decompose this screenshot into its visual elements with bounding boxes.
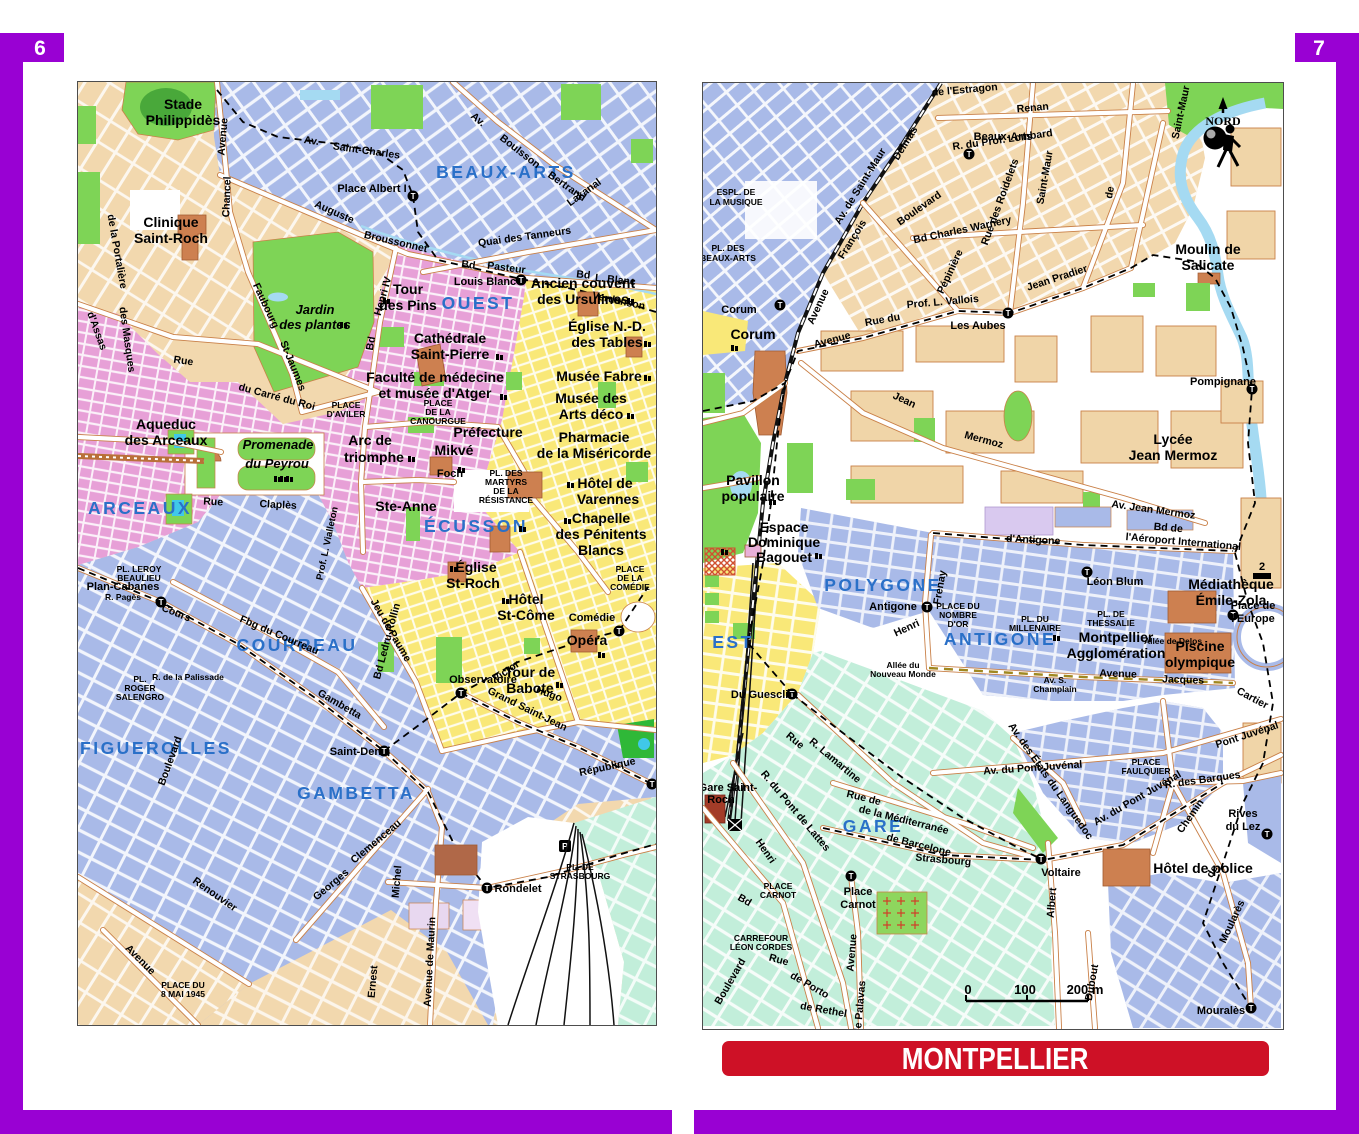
svg-text:R. de la Palissade: R. de la Palissade xyxy=(152,672,224,682)
svg-text:Les Aubes: Les Aubes xyxy=(950,320,1005,332)
svg-text:BEAUX-ARTS: BEAUX-ARTS xyxy=(703,253,756,263)
svg-text:Bd: Bd xyxy=(364,336,378,352)
svg-text:Comédie: Comédie xyxy=(569,612,615,624)
svg-text:Louis Blanc: Louis Blanc xyxy=(454,276,516,288)
svg-text:Église N.-D.: Église N.-D. xyxy=(568,318,646,334)
svg-text:T: T xyxy=(459,689,464,698)
svg-text:FAULQUIER: FAULQUIER xyxy=(1121,766,1170,776)
svg-text:Allée de Delos: Allée de Delos xyxy=(1144,636,1202,646)
svg-text:T: T xyxy=(1006,309,1011,318)
svg-text:Champlain: Champlain xyxy=(1033,684,1076,694)
svg-text:ARCEAUX: ARCEAUX xyxy=(88,498,192,518)
svg-text:T: T xyxy=(849,872,854,881)
svg-text:T: T xyxy=(650,780,655,789)
svg-text:COMÉDIE: COMÉDIE xyxy=(610,582,650,592)
svg-text:PL. DES: PL. DES xyxy=(711,243,744,253)
svg-text:Montpellier: Montpellier xyxy=(1079,629,1154,645)
svg-text:Pavillon: Pavillon xyxy=(726,472,780,488)
svg-text:0: 0 xyxy=(964,982,971,997)
svg-text:Du Guesclin: Du Guesclin xyxy=(731,689,795,701)
svg-text:Bd: Bd xyxy=(576,268,591,281)
svg-text:Jardin: Jardin xyxy=(295,302,334,317)
svg-text:Jean Mermoz: Jean Mermoz xyxy=(1129,447,1218,463)
svg-text:Varennes: Varennes xyxy=(577,491,639,507)
svg-text:FIGUEROLLES: FIGUEROLLES xyxy=(80,738,232,758)
svg-text:LA MUSIQUE: LA MUSIQUE xyxy=(709,197,762,207)
svg-text:Opéra: Opéra xyxy=(567,632,608,648)
svg-text:ESPL. DE: ESPL. DE xyxy=(717,187,756,197)
svg-text:Carnot: Carnot xyxy=(840,899,876,911)
svg-text:Rives: Rives xyxy=(1228,808,1257,820)
svg-text:EST: EST xyxy=(712,632,754,652)
svg-text:POLYGONE: POLYGONE xyxy=(824,575,942,595)
svg-text:RÉSISTANCE: RÉSISTANCE xyxy=(479,495,533,505)
svg-text:des Pénitents: des Pénitents xyxy=(555,526,646,542)
svg-text:St-Roch: St-Roch xyxy=(446,575,500,591)
svg-text:2: 2 xyxy=(1259,561,1265,573)
svg-text:MILLENAIRE: MILLENAIRE xyxy=(1009,623,1061,633)
svg-text:Place: Place xyxy=(844,886,873,898)
svg-text:Rondelet: Rondelet xyxy=(494,883,541,895)
svg-text:T: T xyxy=(519,276,524,285)
svg-text:Voltaire: Voltaire xyxy=(1041,867,1081,879)
svg-text:Pharmacie: Pharmacie xyxy=(559,429,630,445)
svg-text:Saint-Roch: Saint-Roch xyxy=(134,230,208,246)
svg-text:Hôtel de police: Hôtel de police xyxy=(1153,860,1253,876)
svg-text:triomphe: triomphe xyxy=(344,449,404,465)
svg-text:T: T xyxy=(1265,830,1270,839)
svg-text:Blancs: Blancs xyxy=(578,542,624,558)
svg-text:Musée Fabre: Musée Fabre xyxy=(556,368,642,384)
svg-text:GAMBETTA: GAMBETTA xyxy=(297,783,415,803)
svg-text:St-Côme: St-Côme xyxy=(497,607,555,623)
svg-text:Bagouet: Bagouet xyxy=(756,549,812,565)
svg-text:THESSALIE: THESSALIE xyxy=(1087,618,1135,628)
svg-text:Mikvé: Mikvé xyxy=(435,442,474,458)
svg-text:Arts déco: Arts déco xyxy=(559,406,624,422)
svg-text:Rue: Rue xyxy=(203,495,224,508)
svg-text:Moulin de: Moulin de xyxy=(1175,241,1241,257)
svg-text:T: T xyxy=(778,301,783,310)
svg-text:du Peyrou: du Peyrou xyxy=(245,456,309,471)
svg-text:Préfecture: Préfecture xyxy=(453,424,522,440)
svg-text:D'OR: D'OR xyxy=(948,619,969,629)
svg-text:Hôtel: Hôtel xyxy=(509,591,544,607)
svg-text:Antigone: Antigone xyxy=(869,601,917,613)
svg-text:Philippidès: Philippidès xyxy=(146,112,221,128)
svg-text:Nouveau Monde: Nouveau Monde xyxy=(870,669,936,679)
svg-text:Mouralès: Mouralès xyxy=(1197,1005,1245,1017)
svg-text:SALENGRO: SALENGRO xyxy=(116,692,165,702)
svg-text:Saint-Pierre: Saint-Pierre xyxy=(411,346,490,362)
svg-text:l'Europe: l'Europe xyxy=(1231,613,1275,625)
svg-text:Place de: Place de xyxy=(1231,600,1276,612)
svg-text:Av.: Av. xyxy=(303,134,320,148)
svg-text:T: T xyxy=(411,192,416,201)
svg-text:Faculté de médecine: Faculté de médecine xyxy=(366,369,504,385)
svg-text:Jacques: Jacques xyxy=(1162,673,1205,686)
svg-text:T: T xyxy=(925,603,930,612)
svg-text:Espace: Espace xyxy=(759,519,808,535)
svg-text:LÉON CORDES: LÉON CORDES xyxy=(730,942,793,952)
svg-text:8 MAI 1945: 8 MAI 1945 xyxy=(161,989,205,999)
svg-text:Église: Église xyxy=(455,559,496,575)
svg-text:Claplès: Claplès xyxy=(259,498,297,512)
svg-text:T: T xyxy=(1249,1004,1254,1013)
svg-text:Aqueduc: Aqueduc xyxy=(136,416,196,432)
svg-text:des Arceaux: des Arceaux xyxy=(125,432,208,448)
svg-text:du Lez: du Lez xyxy=(1226,821,1261,833)
svg-text:Tour: Tour xyxy=(393,281,424,297)
svg-text:Promenade: Promenade xyxy=(243,437,314,452)
svg-text:CANOURGUE: CANOURGUE xyxy=(410,416,466,426)
svg-text:Corum: Corum xyxy=(730,326,775,342)
svg-text:Arc de: Arc de xyxy=(348,432,392,448)
svg-text:Léon Blum: Léon Blum xyxy=(1087,576,1144,588)
svg-text:BEAULIEU: BEAULIEU xyxy=(117,573,160,583)
svg-text:olympique: olympique xyxy=(1165,654,1235,670)
svg-text:Stade: Stade xyxy=(164,96,202,112)
svg-text:R. Pagès: R. Pagès xyxy=(105,592,141,602)
svg-text:ÉCUSSON: ÉCUSSON xyxy=(424,515,528,536)
svg-text:T: T xyxy=(1039,855,1044,864)
svg-text:D'AVILER: D'AVILER xyxy=(327,409,366,419)
svg-text:Agglomération: Agglomération xyxy=(1067,645,1166,661)
svg-text:Clinique: Clinique xyxy=(143,214,198,230)
svg-text:Pompignane: Pompignane xyxy=(1190,376,1256,388)
svg-text:100: 100 xyxy=(1014,982,1036,997)
svg-text:T: T xyxy=(617,627,622,636)
svg-text:T: T xyxy=(967,150,972,159)
svg-text:Lycée: Lycée xyxy=(1153,431,1192,447)
svg-text:des Tables: des Tables xyxy=(571,334,643,350)
svg-text:STRASBOURG: STRASBOURG xyxy=(550,871,611,881)
svg-text:de: de xyxy=(1103,185,1117,199)
svg-text:NORD: NORD xyxy=(1205,114,1241,128)
svg-text:Chapelle: Chapelle xyxy=(572,510,631,526)
svg-text:Dominique: Dominique xyxy=(748,534,821,550)
svg-text:Salicate: Salicate xyxy=(1182,257,1235,273)
svg-text:Chancel: Chancel xyxy=(220,176,233,217)
svg-text:T: T xyxy=(485,884,490,893)
svg-text:Hôtel de: Hôtel de xyxy=(577,475,632,491)
svg-text:Place Albert I: Place Albert I xyxy=(337,183,406,195)
svg-text:Corum: Corum xyxy=(721,304,757,316)
svg-text:CARNOT: CARNOT xyxy=(760,890,797,900)
svg-text:Ste-Anne: Ste-Anne xyxy=(375,498,437,514)
svg-text:OUEST: OUEST xyxy=(442,293,515,313)
svg-text:Musée des: Musée des xyxy=(555,390,627,406)
svg-text:Bd: Bd xyxy=(461,258,476,272)
svg-text:Roch: Roch xyxy=(707,794,735,806)
svg-text:Cathédrale: Cathédrale xyxy=(414,330,487,346)
svg-text:Avenue: Avenue xyxy=(1099,667,1137,680)
svg-text:Gare Saint-: Gare Saint- xyxy=(703,782,758,794)
svg-text:de la Miséricorde: de la Miséricorde xyxy=(537,445,652,461)
svg-text:Saint-Denis: Saint-Denis xyxy=(330,746,391,758)
